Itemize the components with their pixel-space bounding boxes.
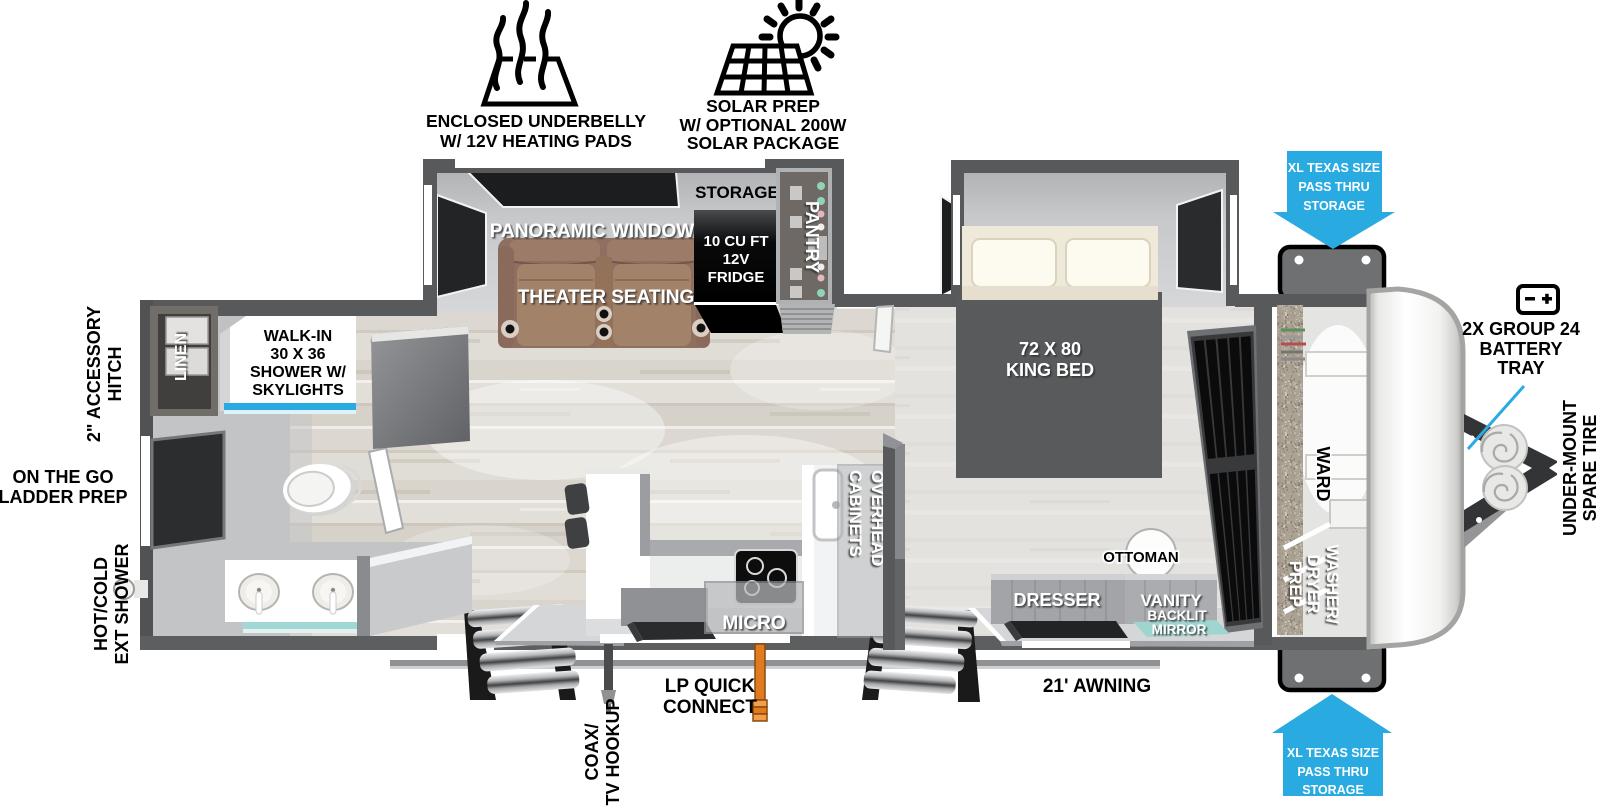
svg-text:ON THE GO: ON THE GO: [12, 467, 113, 487]
svg-text:PANORAMIC WINDOW: PANORAMIC WINDOW: [490, 221, 694, 242]
svg-text:EXT SHOWER: EXT SHOWER: [112, 543, 132, 664]
svg-text:SOLAR PREP: SOLAR PREP: [706, 96, 820, 116]
svg-text:WALK-IN: WALK-IN: [264, 328, 332, 345]
svg-text:HOT/COLD: HOT/COLD: [91, 557, 111, 651]
svg-text:PREP: PREP: [1286, 561, 1305, 607]
svg-text:KING BED: KING BED: [1006, 360, 1094, 380]
svg-text:21' AWNING: 21' AWNING: [1043, 676, 1151, 697]
svg-text:10 CU FT: 10 CU FT: [703, 233, 768, 250]
svg-text:MICRO: MICRO: [722, 613, 785, 634]
svg-text:CABINETS: CABINETS: [846, 470, 865, 557]
svg-text:SOLAR PACKAGE: SOLAR PACKAGE: [687, 133, 839, 153]
svg-text:SKYLIGHTS: SKYLIGHTS: [252, 382, 344, 399]
svg-text:ENCLOSED UNDERBELLY: ENCLOSED UNDERBELLY: [426, 111, 646, 131]
svg-text:OTTOMAN: OTTOMAN: [1103, 549, 1179, 566]
svg-text:WARD: WARD: [1313, 447, 1333, 502]
svg-text:STORAGE: STORAGE: [1302, 783, 1364, 797]
svg-text:BACKLIT: BACKLIT: [1147, 608, 1207, 623]
svg-text:TRAY: TRAY: [1497, 358, 1544, 378]
svg-text:XL TEXAS SIZE: XL TEXAS SIZE: [1288, 161, 1380, 175]
svg-text:SPARE TIRE: SPARE TIRE: [1580, 415, 1600, 522]
svg-text:STORAGE: STORAGE: [695, 183, 779, 202]
svg-text:72 X 80: 72 X 80: [1019, 339, 1081, 359]
svg-text:XL TEXAS SIZE: XL TEXAS SIZE: [1287, 746, 1379, 760]
svg-text:PANTRY: PANTRY: [802, 201, 822, 273]
svg-text:WASHER/: WASHER/: [1323, 544, 1342, 624]
svg-text:MIRROR: MIRROR: [1152, 622, 1207, 637]
svg-text:THEATER SEATING: THEATER SEATING: [518, 287, 695, 308]
svg-text:SHOWER W/: SHOWER W/: [250, 364, 347, 381]
svg-text:HITCH: HITCH: [105, 347, 125, 402]
svg-text:PASS THRU: PASS THRU: [1298, 180, 1369, 194]
svg-text:2X GROUP 24: 2X GROUP 24: [1462, 319, 1580, 339]
svg-text:UNDER-MOUNT: UNDER-MOUNT: [1560, 400, 1580, 536]
svg-text:DRYER: DRYER: [1304, 555, 1323, 614]
svg-text:CONNECT: CONNECT: [663, 697, 757, 718]
svg-text:W/ 12V HEATING PADS: W/ 12V HEATING PADS: [440, 131, 632, 151]
svg-text:FRIDGE: FRIDGE: [708, 269, 765, 286]
svg-text:W/ OPTIONAL 200W: W/ OPTIONAL 200W: [680, 115, 847, 135]
svg-text:PASS THRU: PASS THRU: [1297, 765, 1368, 779]
svg-text:DRESSER: DRESSER: [1013, 590, 1100, 610]
svg-text:LINEN: LINEN: [173, 333, 190, 381]
svg-text:30 X 36: 30 X 36: [270, 346, 325, 363]
svg-text:COAX/: COAX/: [582, 723, 602, 780]
svg-text:TV HOOKUP: TV HOOKUP: [603, 698, 623, 805]
svg-text:LP QUICK: LP QUICK: [665, 676, 756, 697]
svg-text:2" ACCESSORY: 2" ACCESSORY: [84, 306, 104, 442]
svg-text:LADDER PREP: LADDER PREP: [0, 487, 128, 507]
svg-text:BATTERY: BATTERY: [1480, 339, 1563, 359]
svg-text:STORAGE: STORAGE: [1303, 199, 1365, 213]
svg-text:12V: 12V: [723, 251, 750, 268]
